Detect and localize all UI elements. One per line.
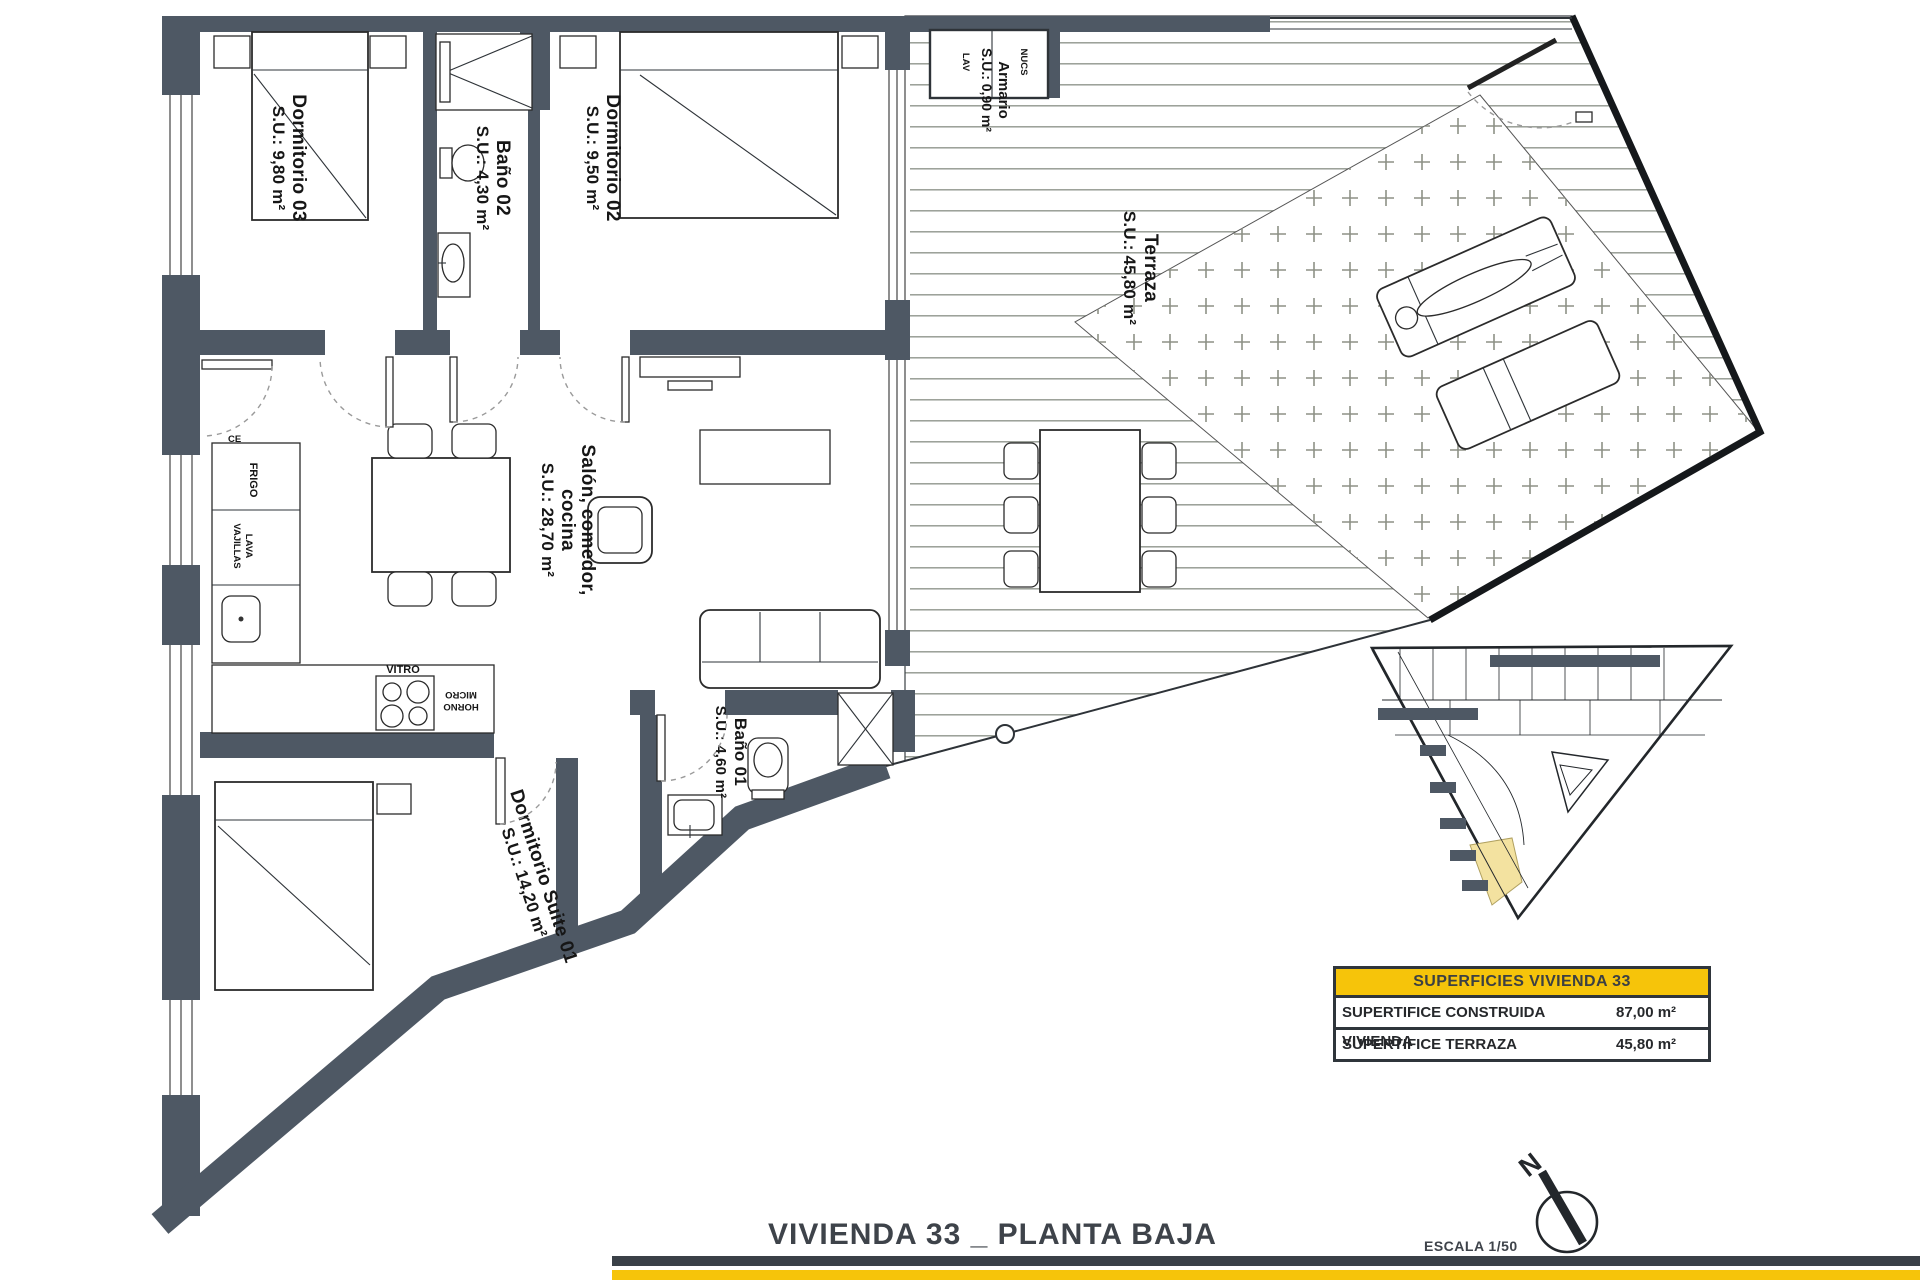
room-name: Armario xyxy=(995,61,1012,119)
door-dorm03 xyxy=(320,357,393,427)
surfaces-table: SUPERFICIES VIVIENDA 33 SUPERTIFICE CONS… xyxy=(1333,966,1711,1062)
bano02-label: Baño 02 S.U.: 4,30 m² xyxy=(473,126,513,231)
dormitorio02-label: Dormitorio 02 S.U.: 9,50 m² xyxy=(583,94,623,221)
window-dorm02-terrace xyxy=(885,70,910,300)
site-unit-tag xyxy=(1462,880,1488,891)
floor-plan-drawing: Terraza S.U.: 45,80 m² xyxy=(0,0,1920,1280)
surface-label: SUPERTIFICE TERRAZA xyxy=(1336,1030,1616,1059)
bed xyxy=(620,32,838,218)
terrace-gate-post xyxy=(996,725,1014,743)
room-area: S.U.: 28,70 m² xyxy=(538,463,557,577)
table-row: SUPERTIFICE CONSTRUIDA VIVIENDA 87,00 m² xyxy=(1336,998,1708,1030)
micro-label: MICRO xyxy=(445,689,477,700)
window-kitchen xyxy=(162,455,200,565)
footer-bar-dark xyxy=(612,1256,1920,1266)
suite-wardrobe xyxy=(838,693,893,765)
room-name-1: Salón, comedor, xyxy=(577,444,598,595)
vitro-label: VITRO xyxy=(386,664,420,676)
bathroom-sink xyxy=(668,795,722,838)
site-unit-tag xyxy=(1450,850,1476,861)
room-area: S.U.: 9,50 m² xyxy=(583,106,602,211)
terrace-area-label: S.U.: 45,80 m² xyxy=(1120,211,1139,325)
room-name: Baño 01 xyxy=(731,718,750,786)
room-area: S.U.: 0,90 m² xyxy=(979,48,995,132)
terrace-chair xyxy=(1142,497,1176,533)
nightstand xyxy=(370,36,406,68)
floor-plan-sheet: Terraza S.U.: 45,80 m² xyxy=(0,0,1920,1280)
ce-label: CE xyxy=(228,434,241,445)
site-pool xyxy=(1552,752,1608,812)
lav-label: LAV xyxy=(960,53,971,72)
dormitorio03-label: Dormitorio 03 S.U.: 9,80 m² xyxy=(269,94,309,221)
chair xyxy=(452,572,496,606)
room-name: Dormitorio 02 xyxy=(602,94,623,221)
tv xyxy=(668,381,712,390)
door-bano02 xyxy=(450,357,518,422)
nightstand xyxy=(560,36,596,68)
nightstand xyxy=(377,784,411,814)
terrace-chair xyxy=(1004,551,1038,587)
frigo-label: FRIGO xyxy=(247,463,259,498)
site-label-strip xyxy=(1378,708,1478,720)
door-dorm02 xyxy=(560,357,629,422)
room-name: Dormitorio 03 xyxy=(288,94,309,221)
door-entry xyxy=(202,360,272,436)
window-suite-low xyxy=(162,1000,200,1095)
room-name-2: cocina xyxy=(557,489,578,551)
site-unit-tag xyxy=(1440,818,1466,829)
oven-label: HORNO MICRO xyxy=(443,689,478,712)
sofa xyxy=(700,610,880,688)
terrace-chair xyxy=(1142,443,1176,479)
nightstand xyxy=(842,36,878,68)
nightstand xyxy=(214,36,250,68)
terrace-chair xyxy=(1142,551,1176,587)
sheet-title: VIVIENDA 33 _ PLANTA BAJA xyxy=(768,1218,1217,1252)
room-bano02: Baño 02 S.U.: 4,30 m² xyxy=(436,34,532,297)
terrace-table xyxy=(1040,430,1140,592)
room-area: S.U.: 9,80 m² xyxy=(269,106,288,211)
site-plan xyxy=(1372,646,1731,918)
surface-value: 87,00 m² xyxy=(1616,998,1708,1027)
terrace-name: Terraza xyxy=(1140,234,1161,302)
site-highlight-unit33 xyxy=(1470,838,1522,905)
window-salon-glass-doors xyxy=(885,360,910,630)
surface-value: 45,80 m² xyxy=(1616,1030,1708,1059)
terrace: Terraza S.U.: 45,80 m² xyxy=(886,16,1760,766)
bed xyxy=(215,782,373,990)
table-row: SUPERTIFICE TERRAZA 45,80 m² xyxy=(1336,1030,1708,1059)
terrace-chair xyxy=(1004,443,1038,479)
toilet xyxy=(748,738,788,799)
room-name: Baño 02 xyxy=(492,140,513,216)
room-dormitorio03: Dormitorio 03 S.U.: 9,80 m² xyxy=(214,32,406,222)
gate-latch xyxy=(1576,112,1592,122)
window-suite xyxy=(162,645,200,795)
lava-label: LAVA xyxy=(243,534,254,559)
salon-label: Salón, comedor, cocina S.U.: 28,70 m² xyxy=(538,444,598,595)
chair xyxy=(388,572,432,606)
window-dorm03 xyxy=(162,95,200,275)
room-salon-cocina: FRIGO LAVA VAJILLAS VITRO HORNO MICRO CE xyxy=(212,357,880,733)
dining-table xyxy=(372,458,510,572)
nucs-label: NUCS xyxy=(1018,49,1029,76)
bathroom-sink xyxy=(438,233,470,297)
surface-label: SUPERTIFICE CONSTRUIDA VIVIENDA xyxy=(1336,998,1616,1027)
room-area: S.U.: 4,30 m² xyxy=(473,126,492,231)
bano01-label: Baño 01 S.U.: 4,60 m² xyxy=(712,706,750,799)
terrace-dining-set xyxy=(1004,430,1176,592)
scale-note: ESCALA 1/50 xyxy=(1424,1238,1518,1254)
shower-screen xyxy=(440,42,450,102)
terrace-chair xyxy=(1004,497,1038,533)
site-label-strip xyxy=(1490,655,1660,667)
chair xyxy=(452,424,496,458)
dining-set xyxy=(372,424,510,606)
vajillas-label: VAJILLAS xyxy=(231,523,242,568)
room-dormitorio02: Dormitorio 02 S.U.: 9,50 m² xyxy=(560,32,878,222)
horno-label: HORNO xyxy=(443,701,478,712)
surfaces-table-header: SUPERFICIES VIVIENDA 33 xyxy=(1336,969,1708,998)
site-unit-tag xyxy=(1420,745,1446,756)
coffee-table xyxy=(700,430,830,484)
footer-bar-yellow xyxy=(612,1270,1920,1280)
chair xyxy=(388,424,432,458)
tv-sideboard xyxy=(640,357,740,390)
room-area: S.U.: 4,60 m² xyxy=(712,706,729,799)
site-unit-tag xyxy=(1430,782,1456,793)
north-arrow-icon: N xyxy=(1513,1147,1597,1252)
